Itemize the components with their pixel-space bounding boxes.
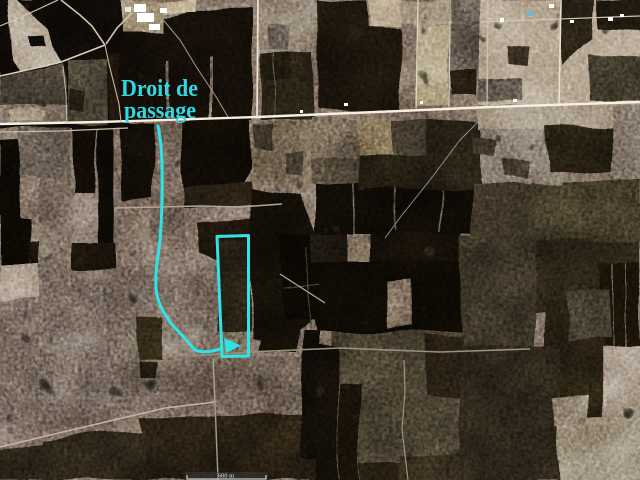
svg-text:600 m: 600 m — [218, 473, 234, 480]
svg-text:passage: passage — [124, 97, 196, 124]
